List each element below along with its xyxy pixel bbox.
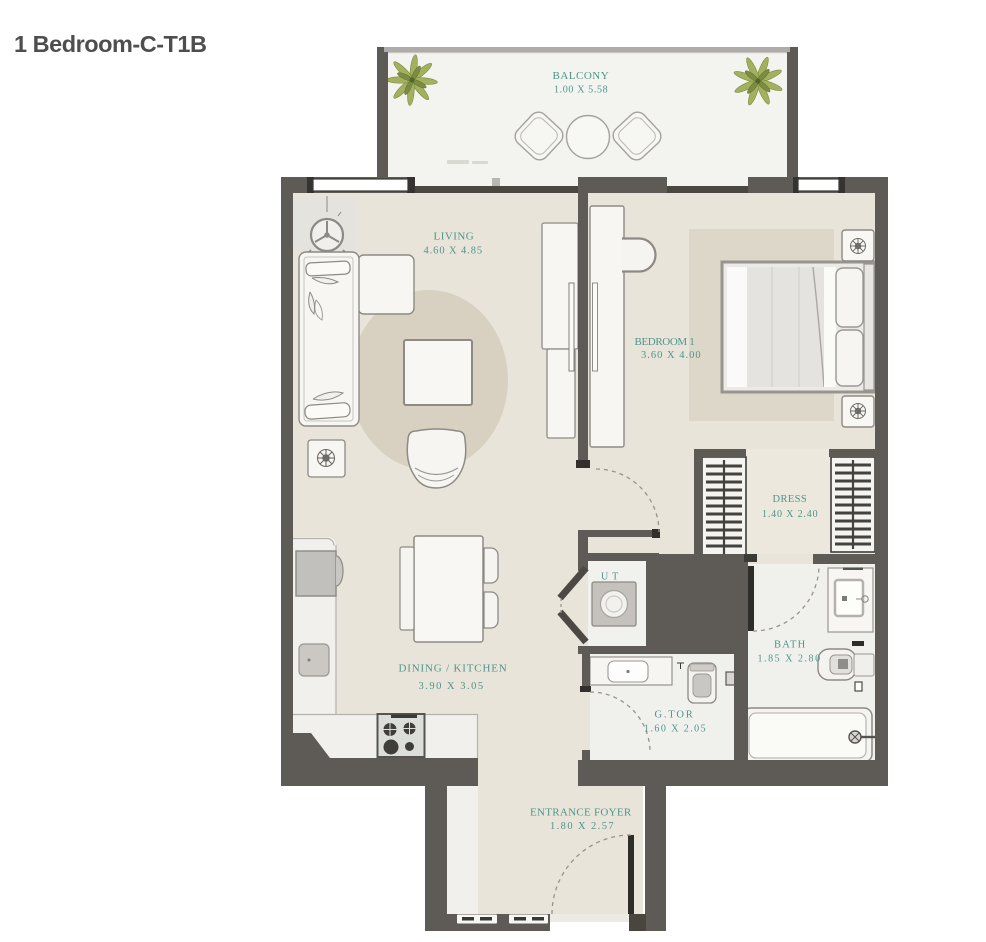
svg-text:3.90 X 3.05: 3.90 X 3.05 xyxy=(419,681,484,692)
svg-text:1.60 X 2.05: 1.60 X 2.05 xyxy=(644,724,706,735)
svg-text:1.40 X 2.40: 1.40 X 2.40 xyxy=(762,509,818,520)
svg-text:BALCONY: BALCONY xyxy=(553,70,610,82)
svg-text:3.60 X 4.00: 3.60 X 4.00 xyxy=(641,350,701,361)
svg-text:BATH: BATH xyxy=(774,640,806,651)
svg-text:ENTRANCE FOYER: ENTRANCE FOYER xyxy=(530,807,632,819)
svg-text:DRESS: DRESS xyxy=(773,494,808,505)
svg-text:G.TOR: G.TOR xyxy=(655,710,694,721)
svg-text:DINING / KITCHEN: DINING / KITCHEN xyxy=(399,663,508,675)
svg-text:BEDROOM 1: BEDROOM 1 xyxy=(635,336,696,348)
svg-text:1 Bedroom-C-T1B: 1 Bedroom-C-T1B xyxy=(14,31,207,57)
svg-text:1.80 X 2.57: 1.80 X 2.57 xyxy=(550,821,614,832)
svg-text:4.60 X 4.85: 4.60 X 4.85 xyxy=(424,246,483,257)
svg-text:1.85 X 2.80: 1.85 X 2.80 xyxy=(758,654,821,665)
svg-text:LIVING: LIVING xyxy=(434,231,475,243)
svg-text:1.00 X 5.58: 1.00 X 5.58 xyxy=(554,85,608,96)
